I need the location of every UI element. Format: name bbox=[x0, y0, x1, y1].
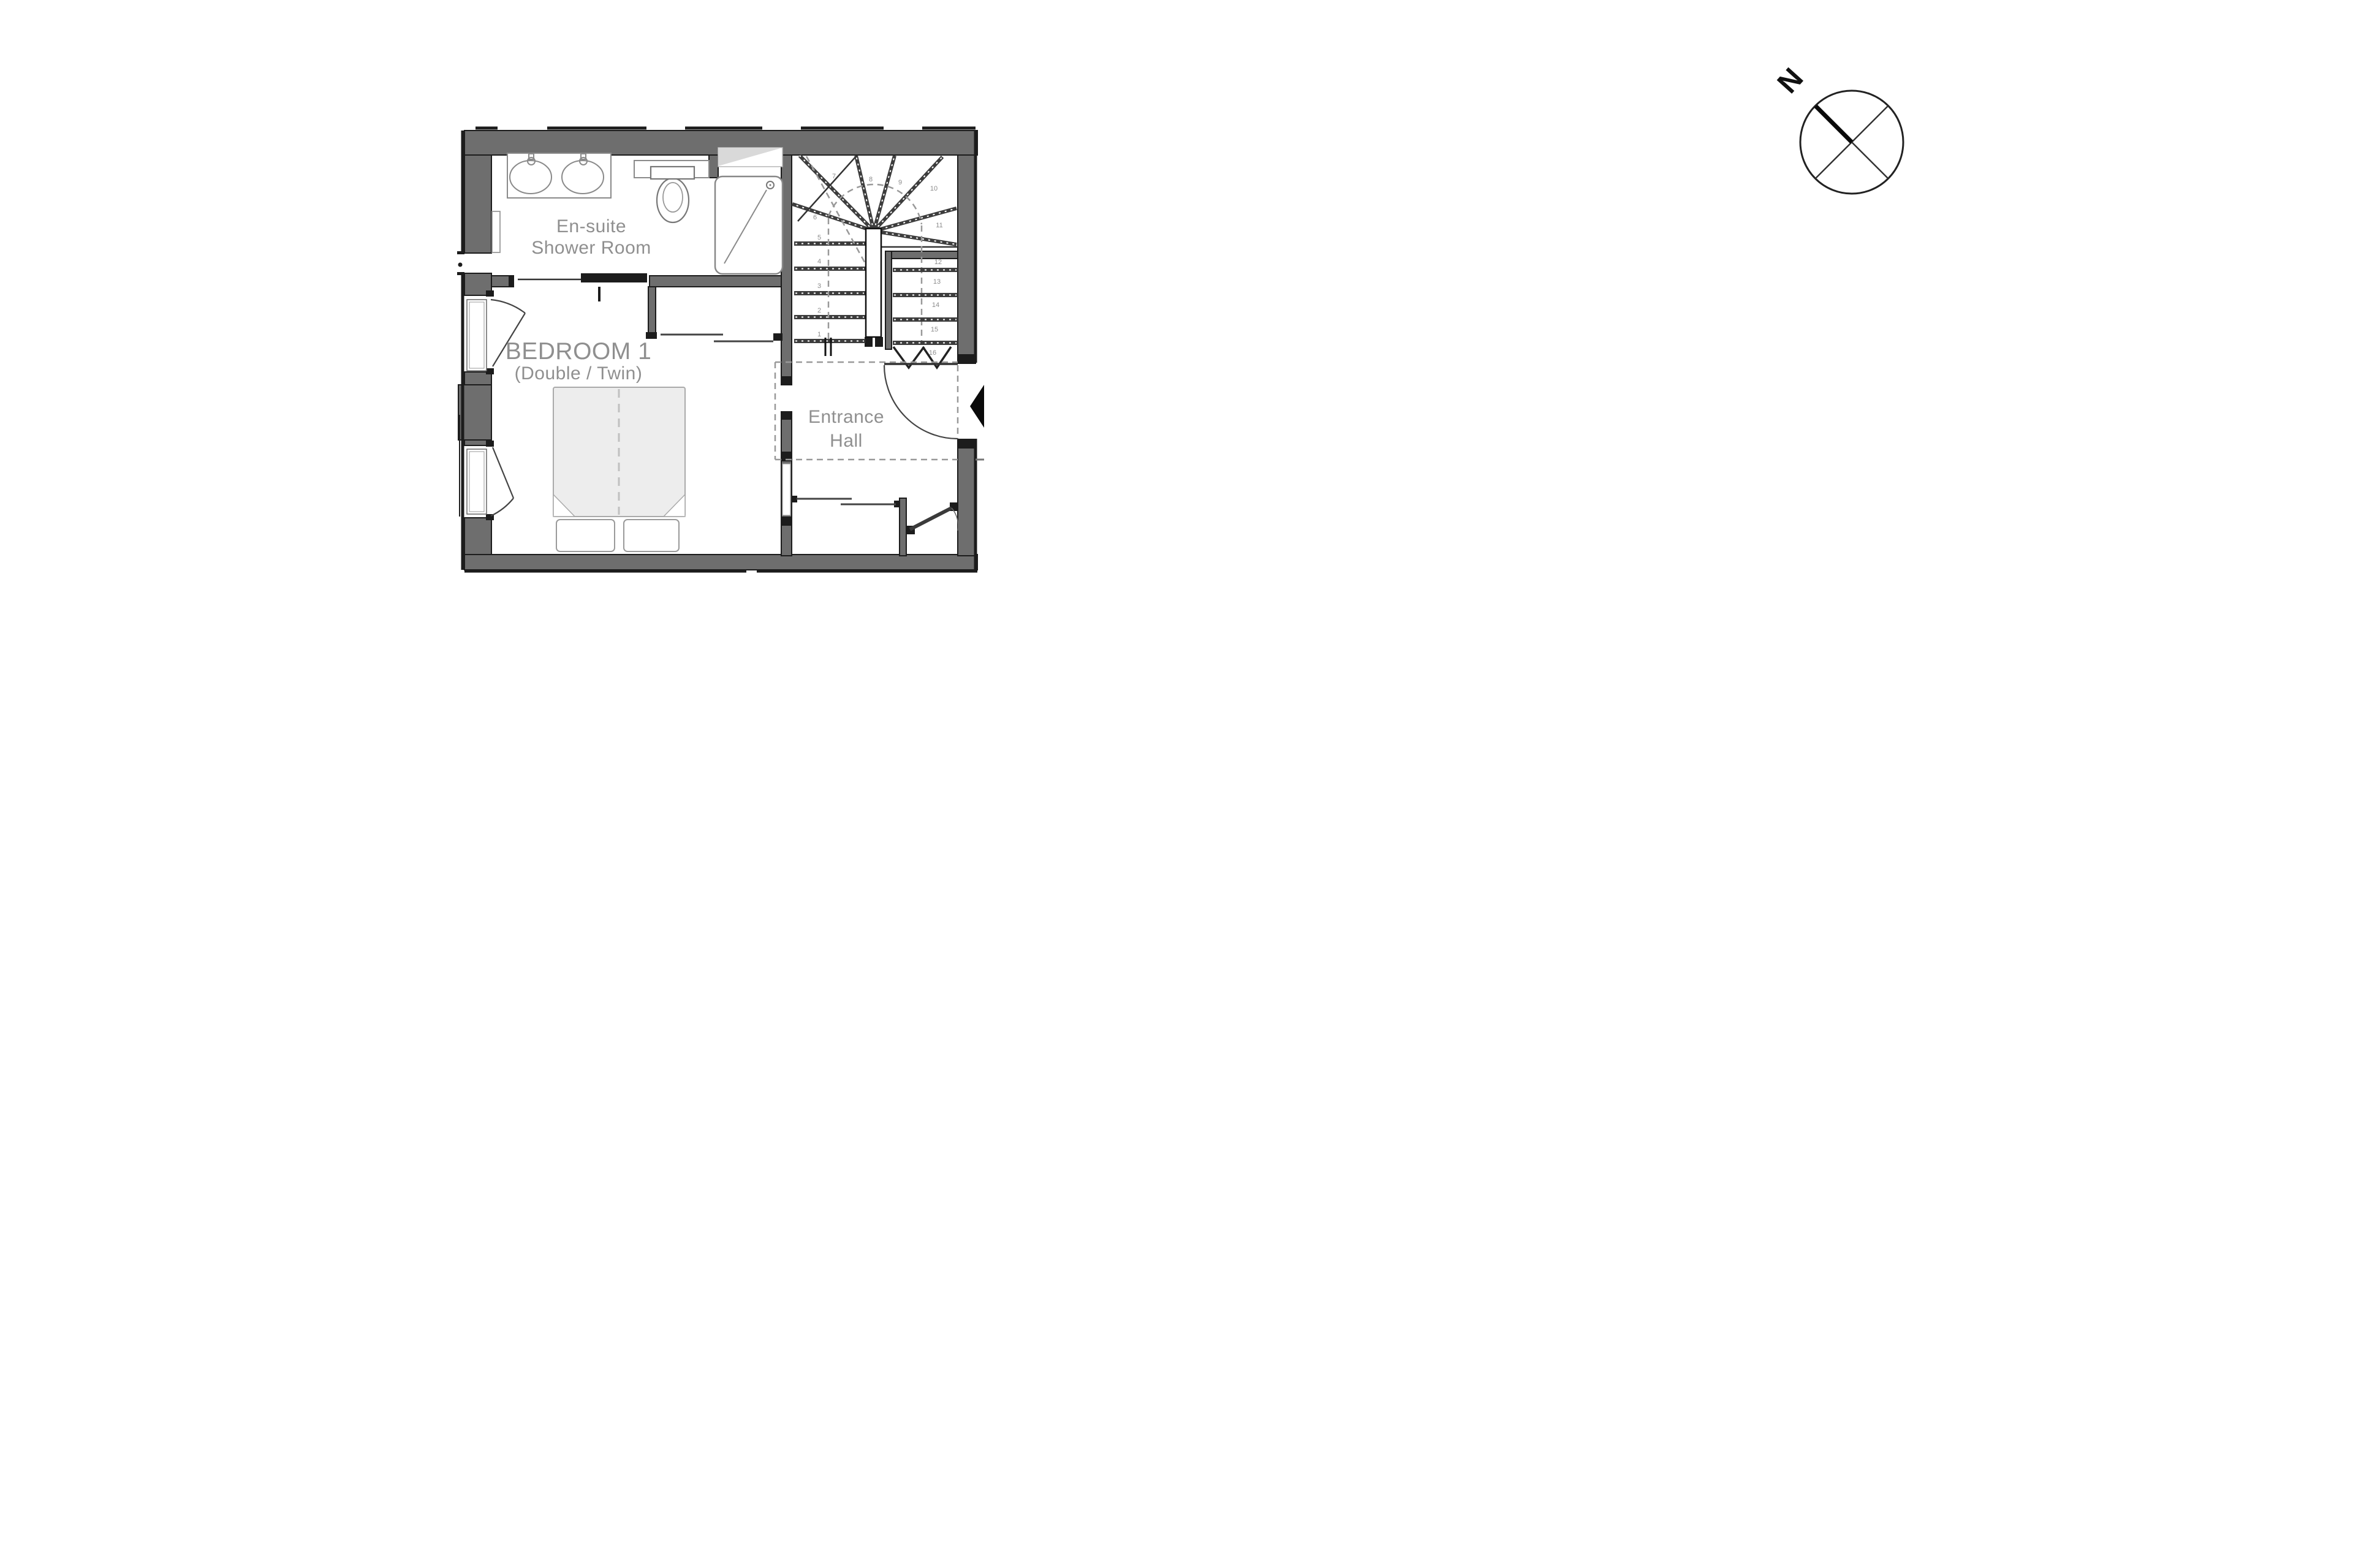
sink-icon bbox=[562, 161, 604, 194]
step-number: 1 bbox=[817, 331, 821, 338]
ensuite-label-line2: Shower Room bbox=[531, 238, 651, 258]
window-jamb bbox=[486, 368, 494, 374]
wall-segment-right-upper bbox=[958, 155, 976, 363]
stair-tread bbox=[794, 315, 865, 319]
step-number: 16 bbox=[929, 349, 936, 357]
step-number: 10 bbox=[930, 185, 938, 192]
casement-swing-arc bbox=[491, 498, 513, 516]
wall-segment-right-lower bbox=[958, 439, 976, 556]
bedroom-label-line2: (Double / Twin) bbox=[515, 363, 643, 384]
door-edge-tick bbox=[598, 287, 601, 301]
stair-string-line bbox=[798, 156, 857, 221]
pillow bbox=[624, 520, 679, 551]
hall-label-line1: Entrance bbox=[808, 407, 884, 427]
floorplan-drawing: 1 2 3 4 5 6 7 8 9 10 11 12 13 14 15 16 bbox=[0, 0, 2353, 1568]
wall-niche bbox=[718, 148, 782, 167]
hall-label-line2: Hall bbox=[830, 431, 863, 451]
front-door-swing-arc bbox=[884, 365, 958, 439]
window-jamb bbox=[486, 290, 494, 297]
step-number: 5 bbox=[817, 234, 821, 241]
window bbox=[467, 447, 513, 516]
window-frame bbox=[467, 449, 487, 514]
closet-sliding-doors bbox=[797, 499, 896, 504]
wall-cap bbox=[781, 517, 792, 526]
walkline-arc bbox=[828, 184, 922, 224]
flue-tick bbox=[457, 272, 464, 275]
page-canvas: 1 2 3 4 5 6 7 8 9 10 11 12 13 14 15 16 bbox=[0, 0, 2353, 1568]
toilet-bowl bbox=[657, 178, 689, 222]
wall-ensuite-south bbox=[650, 276, 781, 287]
step-number: 15 bbox=[931, 326, 938, 333]
step-number: 4 bbox=[817, 258, 821, 265]
wall-cap bbox=[773, 333, 782, 341]
compass-north-needle bbox=[1816, 106, 1852, 142]
pocket-door-panel bbox=[581, 273, 647, 282]
newel-cap bbox=[875, 337, 883, 347]
closet-door bbox=[910, 508, 958, 531]
door-jamb-cap bbox=[958, 354, 976, 363]
stair-tread bbox=[794, 267, 865, 271]
stair-tread bbox=[794, 291, 865, 295]
entrance-arrow-icon bbox=[970, 385, 984, 428]
window-frame bbox=[467, 300, 487, 371]
wall-segment bbox=[464, 155, 491, 253]
shower-icon bbox=[715, 176, 782, 274]
step-number: 12 bbox=[934, 259, 942, 266]
staircase: 1 2 3 4 5 6 7 8 9 10 11 12 13 14 15 16 bbox=[792, 156, 958, 368]
step-number: 9 bbox=[898, 179, 902, 186]
casement-leaf bbox=[493, 447, 513, 498]
shower-head-dot bbox=[770, 184, 771, 186]
step-number: 6 bbox=[813, 214, 817, 221]
closet-door-leaf bbox=[910, 508, 952, 529]
wall-ensuite-east-stub bbox=[709, 155, 718, 178]
window-jamb bbox=[486, 441, 494, 447]
pocket-door-leaf bbox=[782, 464, 790, 515]
entrance-hall bbox=[661, 335, 984, 531]
wall-cap bbox=[509, 276, 513, 287]
pillow bbox=[556, 520, 615, 551]
step-number: 8 bbox=[869, 176, 873, 183]
step-number: 14 bbox=[932, 301, 939, 309]
newel-cap bbox=[865, 337, 873, 347]
step-number: 13 bbox=[933, 278, 941, 286]
compass: N bbox=[1771, 62, 1903, 194]
bed bbox=[553, 387, 685, 551]
wall-segment-bottom bbox=[464, 555, 977, 570]
wall-closet-partition bbox=[900, 498, 906, 556]
flue-dot bbox=[458, 263, 463, 267]
compass-north-label: N bbox=[1771, 62, 1810, 99]
casement-swing-arc bbox=[491, 300, 525, 313]
step-number: 7 bbox=[832, 173, 836, 180]
wall-segment bbox=[464, 518, 491, 556]
radiator bbox=[492, 211, 500, 252]
floor-plan: 1 2 3 4 5 6 7 8 9 10 11 12 13 14 15 16 bbox=[457, 128, 984, 571]
wall-flight-left bbox=[885, 251, 892, 349]
stair-tread bbox=[794, 339, 865, 343]
stair-flight-left bbox=[794, 241, 865, 343]
sink-icon bbox=[510, 161, 551, 194]
flue-tick bbox=[457, 251, 464, 254]
tread-nosing-dots bbox=[894, 270, 957, 343]
shower-tray bbox=[715, 176, 782, 274]
slider-cap bbox=[792, 496, 797, 502]
toilet-cistern bbox=[651, 167, 694, 179]
ensuite-label-line1: En-suite bbox=[556, 216, 626, 237]
toilet-icon bbox=[634, 161, 709, 222]
stair-newel-spine bbox=[866, 229, 881, 337]
bedroom-label-line1: BEDROOM 1 bbox=[506, 338, 652, 365]
wall-cap bbox=[781, 376, 792, 385]
wardrobe-sliding-doors bbox=[661, 335, 773, 341]
step-number: 2 bbox=[817, 307, 821, 314]
wall-cap bbox=[781, 412, 792, 420]
stair-flight-right bbox=[893, 268, 958, 345]
step-number: 3 bbox=[817, 282, 821, 290]
door-jamb-cap bbox=[958, 439, 976, 449]
wall-wardrobe-partition bbox=[648, 287, 656, 338]
step-number: 11 bbox=[936, 222, 942, 229]
